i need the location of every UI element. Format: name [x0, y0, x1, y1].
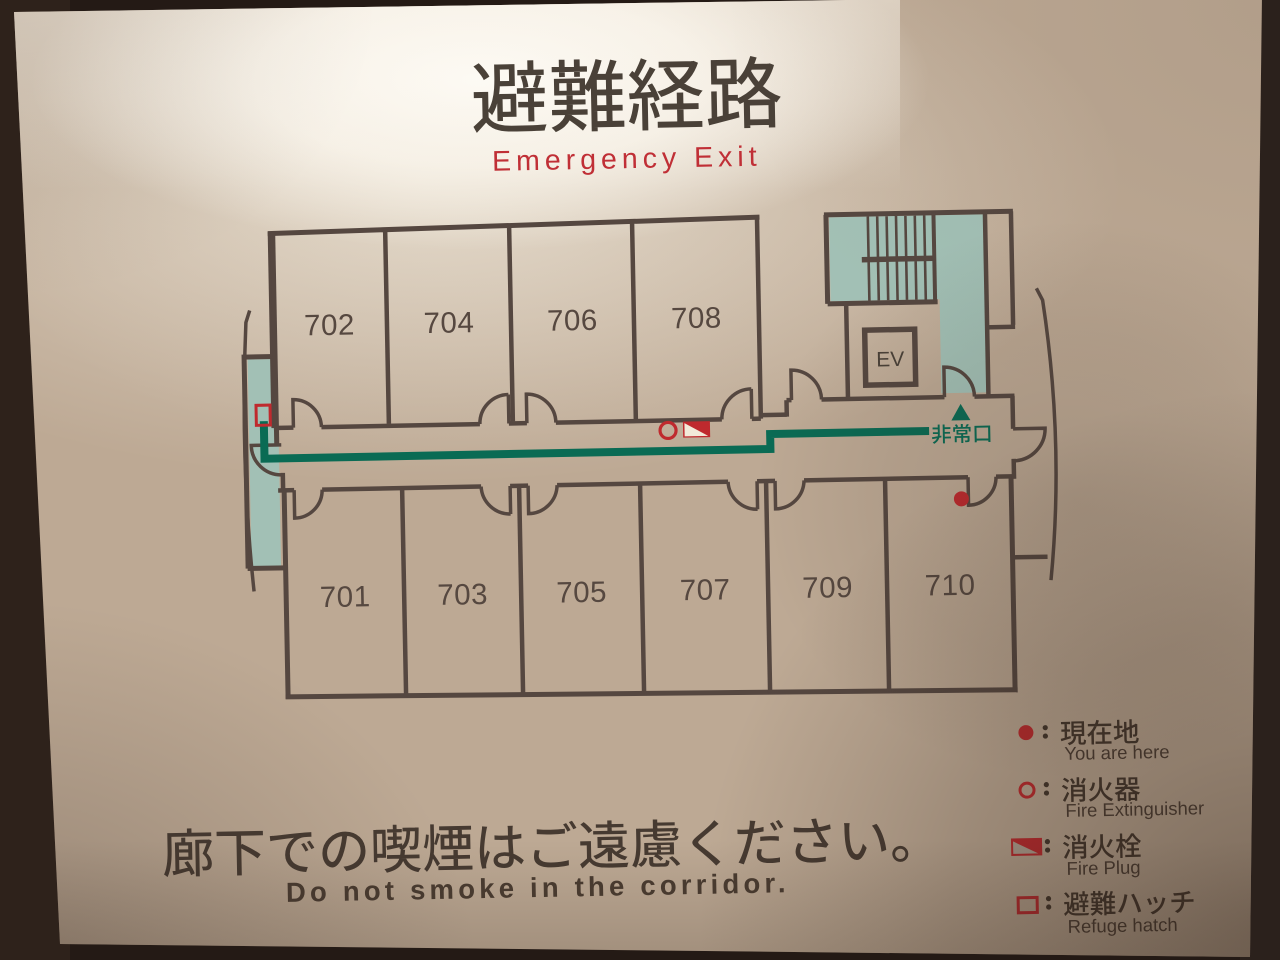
svg-text:702: 702 — [304, 308, 355, 342]
svg-text:708: 708 — [671, 301, 722, 335]
svg-text:701: 701 — [320, 580, 371, 614]
svg-text:Emergency Exit: Emergency Exit — [492, 141, 762, 178]
svg-text:706: 706 — [547, 304, 598, 338]
svg-text:707: 707 — [679, 573, 730, 607]
svg-text:703: 703 — [437, 578, 488, 612]
svg-text:705: 705 — [556, 576, 607, 610]
svg-text:704: 704 — [423, 306, 474, 340]
